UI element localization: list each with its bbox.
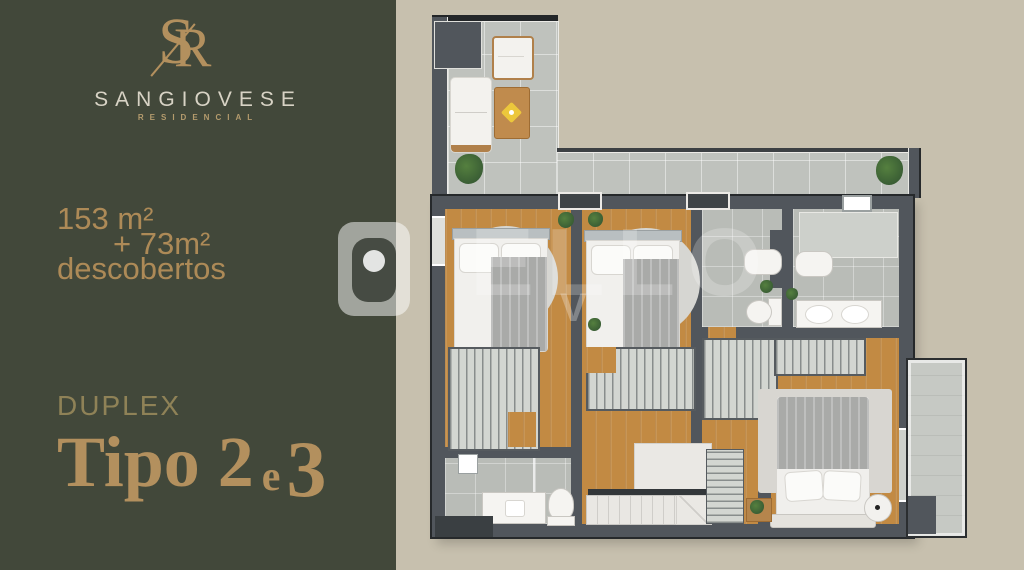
bedroom1-wardrobe-notch xyxy=(508,412,536,447)
bedroom2-wardrobe-notch xyxy=(586,347,616,373)
window-left-wall xyxy=(432,216,445,266)
watermark-text: ELLO xyxy=(470,208,774,318)
armchair-seam xyxy=(498,56,524,57)
bathroom-b-vanity xyxy=(796,300,882,328)
brand-tagline: RESIDENCIAL xyxy=(0,113,396,122)
unit-info: DUPLEX Tipo 2e3 xyxy=(57,390,326,503)
terrace-planter-wall xyxy=(434,21,482,69)
shower-head-symbol xyxy=(458,454,478,474)
terrace-strip-floor xyxy=(557,152,908,197)
master-bed xyxy=(776,396,870,522)
brand-name: SANGIOVESE xyxy=(0,88,396,112)
terrace-coffee-table xyxy=(494,87,530,139)
master-nightstand-right xyxy=(864,494,892,522)
area-uncovered-label: descobertos xyxy=(57,256,226,281)
stair-storage-shelves xyxy=(706,449,744,524)
watermark-badge-icon xyxy=(338,222,410,316)
window-small xyxy=(842,195,872,212)
stairs-landing xyxy=(634,443,712,495)
pillow xyxy=(822,470,862,502)
watermark-letter: V xyxy=(560,286,587,331)
brand-monogram: S R xyxy=(148,18,258,88)
table-decor-dot xyxy=(509,110,514,115)
area-info: 153 m² + 73m² descobertos xyxy=(57,206,226,281)
watermark-glyph-hole xyxy=(363,250,385,272)
bathroom-b-bench xyxy=(795,251,833,277)
unit-type-word: Tipo xyxy=(57,422,200,502)
stairs-lower-flight xyxy=(586,495,678,525)
balcony-step-wall xyxy=(908,496,936,534)
sink xyxy=(505,500,525,517)
terrace-armchair xyxy=(492,36,534,80)
unit-number-2: 3 xyxy=(286,440,326,500)
unit-conjunction: e xyxy=(262,447,281,507)
master-dresser xyxy=(774,338,866,376)
entry-landing-block xyxy=(435,516,493,537)
sofa-seam xyxy=(455,112,487,113)
toilet-tank xyxy=(547,516,575,526)
brand-panel: S R SANGIOVESE RESIDENCIAL 153 m² + 73m²… xyxy=(0,0,396,570)
master-headboard xyxy=(770,514,876,528)
terrace-sofa xyxy=(450,77,492,153)
sink xyxy=(805,305,833,324)
unit-number-1: 2 xyxy=(218,422,254,502)
pillow xyxy=(784,470,824,503)
unit-title: Tipo 2e3 xyxy=(57,430,326,503)
strip-end-wall xyxy=(908,148,919,198)
unit-type-label: DUPLEX xyxy=(57,390,326,422)
side-table-dot xyxy=(875,505,880,510)
sink xyxy=(841,305,869,324)
master-door-opening xyxy=(708,327,736,338)
sofa-wood-base xyxy=(451,145,491,152)
marketing-image: S R SANGIOVESE RESIDENCIAL 153 m² + 73m²… xyxy=(0,0,1024,570)
master-duvet xyxy=(777,397,869,469)
